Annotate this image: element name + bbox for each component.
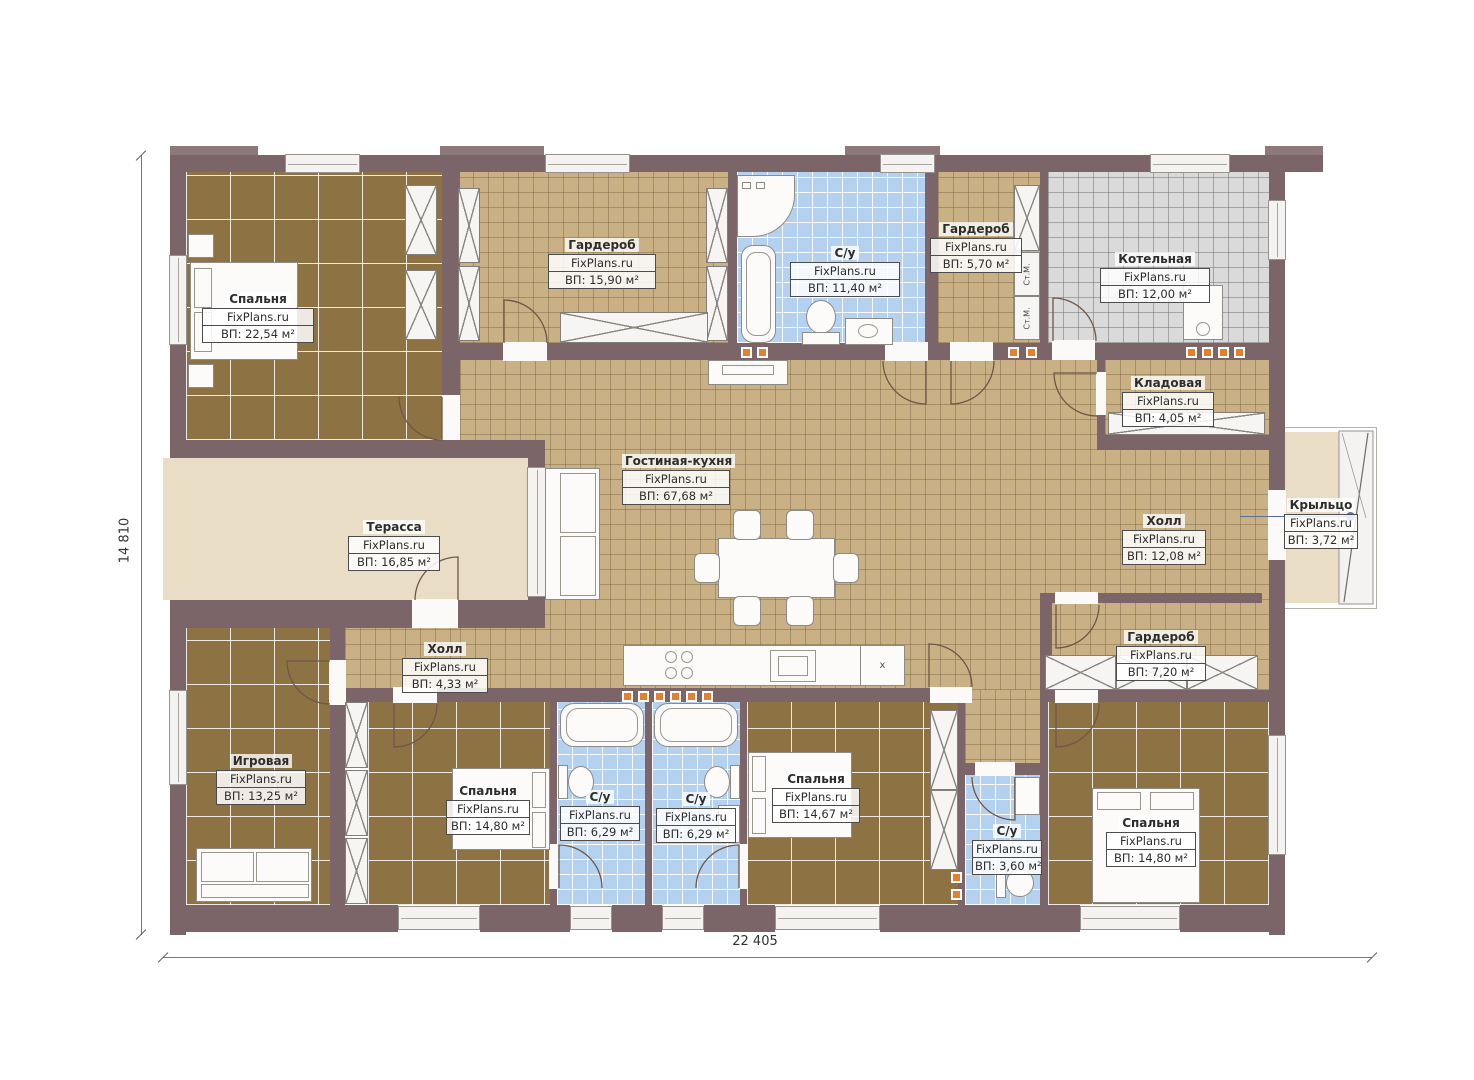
room-area: ВП: 14,80 м² bbox=[447, 817, 529, 834]
chair bbox=[786, 596, 814, 626]
room-area: ВП: 15,90 м² bbox=[549, 271, 655, 288]
watermark: FixPlans.ru bbox=[791, 263, 899, 279]
wall bbox=[330, 600, 345, 660]
watermark: FixPlans.ru bbox=[217, 771, 305, 787]
wall bbox=[170, 155, 285, 172]
door-arc bbox=[695, 844, 740, 889]
closet bbox=[706, 266, 728, 341]
room-area: ВП: 3,60 м² bbox=[973, 857, 1041, 874]
watermark: FixPlans.ru bbox=[1117, 647, 1205, 663]
door-opening bbox=[442, 395, 460, 440]
chair bbox=[786, 510, 814, 540]
wall bbox=[1269, 155, 1285, 200]
room-name: Гардероб bbox=[1124, 630, 1197, 644]
closet bbox=[405, 185, 437, 255]
room-label-bedroom-bottomright: Спальня FixPlans.ruВП: 14,80 м² bbox=[1106, 812, 1196, 867]
sofa-cushion bbox=[560, 473, 596, 533]
room-name: Игровая bbox=[230, 754, 293, 768]
wall bbox=[645, 702, 652, 905]
vent bbox=[670, 691, 681, 702]
watermark: FixPlans.ru bbox=[561, 807, 639, 823]
tv bbox=[722, 365, 774, 375]
wall bbox=[170, 785, 186, 935]
closet bbox=[706, 188, 728, 263]
window bbox=[398, 906, 480, 930]
bathtub-basin bbox=[566, 708, 638, 742]
closet bbox=[930, 710, 958, 790]
washing-machine: Ст.М. bbox=[1014, 296, 1040, 340]
room-label-living-kitchen: Гостиная-кухня FixPlans.ruВП: 67,68 м² bbox=[622, 450, 730, 505]
dimension-line-horizontal bbox=[163, 957, 1372, 958]
wall bbox=[630, 155, 880, 172]
wall bbox=[728, 172, 737, 343]
watermark: FixPlans.ru bbox=[973, 841, 1041, 857]
room-area: ВП: 12,00 м² bbox=[1101, 285, 1209, 302]
wall bbox=[528, 440, 545, 467]
room-area: ВП: 11,40 м² bbox=[791, 279, 899, 296]
room-name: Терасса bbox=[363, 520, 424, 534]
door-arc bbox=[1053, 372, 1098, 417]
vent bbox=[741, 347, 752, 358]
door-opening bbox=[503, 342, 547, 361]
room-label-playroom: Игровая FixPlans.ruВП: 13,25 м² bbox=[216, 750, 306, 805]
vent bbox=[638, 691, 649, 702]
room-name: С/у bbox=[993, 824, 1020, 838]
fridge: x bbox=[860, 645, 905, 686]
room-area: ВП: 16,85 м² bbox=[349, 553, 439, 570]
window bbox=[880, 154, 935, 173]
wall bbox=[170, 905, 398, 932]
room-name: Спальня bbox=[456, 784, 520, 798]
wall bbox=[170, 155, 186, 255]
wall bbox=[550, 888, 557, 905]
room-name: Спальня bbox=[1119, 816, 1183, 830]
dimension-line-vertical bbox=[141, 155, 142, 935]
room-label-wardrobe-right: Гардероб FixPlans.ruВП: 7,20 м² bbox=[1116, 626, 1206, 681]
room-area: ВП: 13,25 м² bbox=[217, 787, 305, 804]
wall bbox=[170, 600, 412, 628]
window bbox=[775, 906, 880, 930]
room-name: Гардероб bbox=[939, 222, 1012, 236]
vent bbox=[1026, 347, 1037, 358]
room-label-wardrobe-small: Гардероб FixPlans.ruВП: 5,70 м² bbox=[930, 218, 1022, 273]
wall bbox=[460, 343, 503, 360]
dining-table bbox=[718, 538, 835, 598]
room-name: Крыльцо bbox=[1287, 498, 1356, 512]
door-opening bbox=[1055, 689, 1098, 703]
wall bbox=[330, 705, 345, 905]
watermark: FixPlans.ru bbox=[349, 537, 439, 553]
wall bbox=[704, 905, 775, 932]
wall bbox=[1097, 435, 1270, 450]
closet bbox=[1045, 655, 1116, 690]
room-area: ВП: 12,08 м² bbox=[1123, 547, 1205, 564]
toilet bbox=[806, 300, 836, 334]
room-name: Гостиная-кухня bbox=[622, 454, 735, 468]
watermark: FixPlans.ru bbox=[1285, 515, 1357, 531]
sofa-back bbox=[201, 884, 309, 898]
chair bbox=[733, 510, 761, 540]
window bbox=[570, 906, 612, 930]
door-opening bbox=[412, 599, 458, 628]
nightstand bbox=[188, 364, 214, 388]
chair bbox=[833, 553, 859, 583]
closet bbox=[345, 838, 368, 904]
room-name: Котельная bbox=[1115, 252, 1195, 266]
wall bbox=[437, 688, 930, 702]
pillow bbox=[532, 772, 546, 808]
vent bbox=[1202, 347, 1213, 358]
boiler-dial bbox=[1196, 322, 1210, 336]
watermark: FixPlans.ru bbox=[403, 659, 487, 675]
wall bbox=[928, 343, 950, 360]
door-arc bbox=[1055, 604, 1100, 649]
room-label-wardrobe-large: Гардероб FixPlans.ruВП: 15,90 м² bbox=[548, 234, 656, 289]
room-label-bath-2: С/у FixPlans.ruВП: 6,29 м² bbox=[656, 788, 736, 843]
wall bbox=[740, 888, 747, 905]
wall bbox=[1097, 360, 1105, 372]
fridge-mark: x bbox=[880, 660, 886, 671]
sofa-cushion bbox=[560, 536, 596, 596]
door-arc bbox=[503, 299, 548, 344]
watermark: FixPlans.ru bbox=[931, 239, 1021, 255]
wall bbox=[1269, 560, 1285, 735]
wall bbox=[740, 702, 747, 845]
room-area: ВП: 3,72 м² bbox=[1285, 531, 1357, 548]
room-area: ВП: 7,20 м² bbox=[1117, 663, 1205, 680]
window bbox=[1150, 154, 1230, 173]
floor-plan: Ст.М. Ст.М. x bbox=[0, 0, 1474, 1080]
door-arc bbox=[558, 844, 603, 889]
vent bbox=[951, 889, 962, 900]
door-arc bbox=[398, 396, 443, 441]
room-label-porch: Крыльцо FixPlans.ruВП: 3,72 м² bbox=[1284, 494, 1358, 549]
wall bbox=[170, 440, 545, 458]
shower-head bbox=[742, 182, 751, 189]
door-opening bbox=[1052, 340, 1095, 360]
vent bbox=[1234, 347, 1245, 358]
door-arc bbox=[971, 776, 1016, 821]
window bbox=[169, 690, 187, 785]
wall bbox=[1269, 855, 1285, 935]
wall bbox=[170, 345, 186, 455]
watermark: FixPlans.ru bbox=[447, 801, 529, 817]
sink-basin bbox=[858, 324, 878, 338]
room-label-boiler-room: Котельная FixPlans.ruВП: 12,00 м² bbox=[1100, 248, 1210, 303]
vent bbox=[686, 691, 697, 702]
door-arc bbox=[950, 360, 995, 405]
room-area: ВП: 5,70 м² bbox=[931, 255, 1021, 272]
vent bbox=[622, 691, 633, 702]
pillow bbox=[1097, 792, 1141, 810]
window bbox=[285, 154, 360, 173]
room-label-bath-3: С/у FixPlans.ruВП: 3,60 м² bbox=[972, 820, 1042, 875]
room-area: ВП: 14,67 м² bbox=[773, 805, 859, 822]
pillow bbox=[752, 756, 766, 792]
watermark: FixPlans.ru bbox=[1123, 531, 1205, 547]
vent bbox=[1008, 347, 1019, 358]
closet bbox=[458, 266, 480, 341]
room-label-bath-1: С/у FixPlans.ruВП: 6,29 м² bbox=[560, 786, 640, 841]
window bbox=[662, 906, 704, 930]
door-opening bbox=[549, 844, 558, 889]
watermark: FixPlans.ru bbox=[1107, 833, 1195, 849]
wall bbox=[612, 905, 662, 932]
door-arc bbox=[928, 643, 973, 688]
window bbox=[545, 154, 630, 173]
window bbox=[1268, 200, 1286, 260]
door-opening bbox=[950, 342, 993, 361]
window bbox=[169, 255, 187, 345]
floor-terrace bbox=[163, 458, 528, 600]
room-name: С/у bbox=[586, 790, 613, 804]
vent bbox=[757, 347, 768, 358]
room-label-bathroom-main: С/у FixPlans.ruВП: 11,40 м² bbox=[790, 242, 900, 297]
room-area: ВП: 14,80 м² bbox=[1107, 849, 1195, 866]
room-label-hall-small: Холл FixPlans.ruВП: 4,33 м² bbox=[402, 638, 488, 693]
nightstand bbox=[188, 234, 214, 258]
wall bbox=[547, 343, 885, 360]
washing-machine-label: Ст.М. bbox=[1022, 263, 1031, 285]
room-name: Гардероб bbox=[565, 238, 638, 252]
room-name: Холл bbox=[1143, 514, 1184, 528]
watermark: FixPlans.ru bbox=[1101, 269, 1209, 285]
room-name: Кладовая bbox=[1131, 376, 1205, 390]
room-label-terrace: Терасса FixPlans.ruВП: 16,85 м² bbox=[348, 516, 440, 571]
kitchen-sink-basin bbox=[778, 656, 808, 676]
closet bbox=[458, 188, 480, 263]
door-opening bbox=[930, 687, 972, 703]
wall bbox=[1098, 593, 1262, 603]
stove-burner bbox=[665, 651, 677, 663]
window bbox=[1080, 906, 1180, 930]
washing-machine-label: Ст.М. bbox=[1022, 307, 1031, 329]
wall bbox=[458, 600, 545, 628]
vent bbox=[702, 691, 713, 702]
room-name: С/у bbox=[682, 792, 709, 806]
room-area: ВП: 6,29 м² bbox=[657, 825, 735, 842]
stove-burner bbox=[681, 651, 693, 663]
watermark: FixPlans.ru bbox=[203, 309, 313, 325]
pillow bbox=[752, 798, 766, 834]
chair bbox=[733, 596, 761, 626]
dimension-width: 22 405 bbox=[715, 934, 795, 949]
room-label-bedroom-topleft: Спальня FixPlans.ruВП: 22,54 м² bbox=[202, 288, 314, 343]
stove-burner bbox=[681, 667, 693, 679]
watermark: FixPlans.ru bbox=[773, 789, 859, 805]
vent bbox=[654, 691, 665, 702]
door-opening bbox=[739, 844, 748, 889]
glass-door bbox=[527, 467, 546, 597]
bathtub-basin bbox=[746, 252, 771, 336]
wall bbox=[360, 155, 545, 172]
watermark: FixPlans.ru bbox=[549, 255, 655, 271]
wall bbox=[1269, 260, 1285, 490]
room-label-hall-large: Холл FixPlans.ruВП: 12,08 м² bbox=[1122, 510, 1206, 565]
room-label-bedroom-middle: Спальня FixPlans.ruВП: 14,67 м² bbox=[772, 768, 860, 823]
door-opening bbox=[329, 660, 346, 705]
closet bbox=[930, 790, 958, 870]
wall bbox=[1040, 593, 1055, 603]
room-area: ВП: 4,05 м² bbox=[1123, 409, 1213, 426]
sofa-cushion bbox=[256, 852, 309, 882]
toilet-tank bbox=[802, 332, 840, 345]
chair bbox=[694, 553, 720, 583]
closet bbox=[345, 770, 368, 836]
door-arc bbox=[882, 360, 927, 405]
room-name: Спальня bbox=[784, 772, 848, 786]
door-opening bbox=[975, 762, 1015, 776]
stove-burner bbox=[665, 667, 677, 679]
bathtub-basin bbox=[660, 708, 732, 742]
sofa-cushion bbox=[201, 852, 254, 882]
pillow bbox=[1150, 792, 1194, 810]
door-arc bbox=[393, 703, 438, 748]
closet bbox=[345, 702, 368, 768]
wall bbox=[480, 905, 570, 932]
door-arc bbox=[1052, 297, 1097, 342]
room-area: ВП: 4,33 м² bbox=[403, 675, 487, 692]
window bbox=[1268, 735, 1286, 855]
room-label-storage: Кладовая FixPlans.ruВП: 4,05 м² bbox=[1122, 372, 1214, 427]
watermark: FixPlans.ru bbox=[623, 471, 729, 487]
watermark: FixPlans.ru bbox=[1123, 393, 1213, 409]
watermark: FixPlans.ru bbox=[657, 809, 735, 825]
vent bbox=[1218, 347, 1229, 358]
room-name: Спальня bbox=[226, 292, 290, 306]
vent bbox=[951, 872, 962, 883]
shower-head bbox=[756, 182, 765, 189]
room-name: С/у bbox=[831, 246, 858, 260]
closet bbox=[405, 270, 437, 340]
closet bbox=[560, 312, 708, 343]
wall bbox=[993, 343, 1052, 360]
room-area: ВП: 22,54 м² bbox=[203, 325, 313, 342]
dimension-height: 14 810 bbox=[118, 511, 133, 571]
room-name: Холл bbox=[424, 642, 465, 656]
room-area: ВП: 67,68 м² bbox=[623, 487, 729, 504]
room-area: ВП: 6,29 м² bbox=[561, 823, 639, 840]
door-arc bbox=[1055, 703, 1100, 748]
wall bbox=[880, 905, 1080, 932]
wall bbox=[550, 702, 557, 845]
room-label-bedroom-bottomleft: Спальня FixPlans.ruВП: 14,80 м² bbox=[446, 780, 530, 835]
wall bbox=[1098, 690, 1270, 702]
wall bbox=[935, 155, 1150, 172]
vent bbox=[1186, 347, 1197, 358]
sink-vanity bbox=[1014, 777, 1040, 815]
pillow bbox=[532, 812, 546, 848]
door-arc bbox=[286, 660, 331, 705]
door-opening bbox=[1055, 592, 1098, 604]
wall bbox=[1040, 172, 1048, 343]
